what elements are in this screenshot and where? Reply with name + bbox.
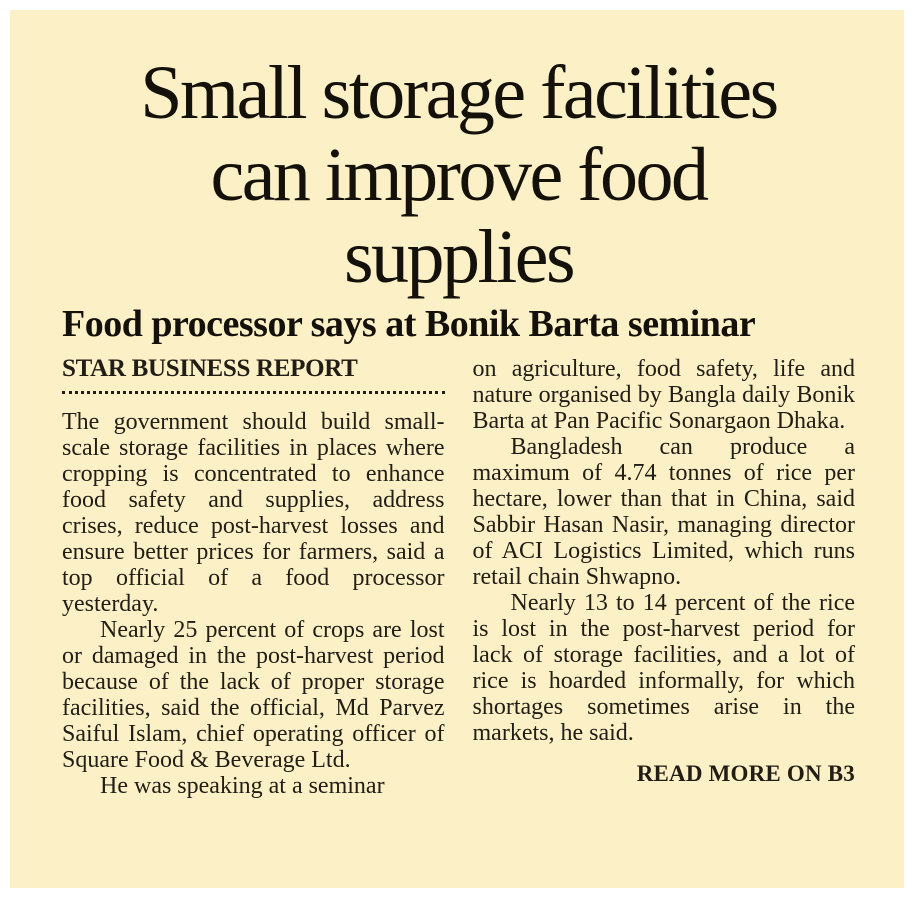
headline-line-2: can improve food: [62, 134, 855, 216]
article-subheadline: Food processor says at Bonik Barta semin…: [62, 302, 855, 346]
byline-dotted-rule: [62, 391, 445, 394]
paragraph: Nearly 13 to 14 percent of the rice is l…: [473, 590, 856, 746]
paragraph: He was speaking at a seminar: [62, 773, 445, 799]
right-column: on agriculture, food safety, life and na…: [473, 356, 856, 799]
article-columns: STAR BUSINESS REPORT The government shou…: [62, 356, 855, 799]
headline-line-1: Small storage facilities: [62, 52, 855, 134]
paragraph: The government should build small-scale …: [62, 409, 445, 617]
newspaper-clipping: Small storage facilities can improve foo…: [10, 10, 904, 888]
byline: STAR BUSINESS REPORT: [62, 356, 445, 382]
headline-line-3: supplies: [62, 216, 855, 298]
read-more-note: READ MORE ON B3: [473, 761, 856, 787]
paragraph: on agriculture, food safety, life and na…: [473, 356, 856, 434]
article-headline: Small storage facilities can improve foo…: [62, 52, 855, 298]
left-column: STAR BUSINESS REPORT The government shou…: [62, 356, 445, 799]
paragraph: Nearly 25 percent of crops are lost or d…: [62, 617, 445, 773]
paragraph: Bangladesh can produce a maximum of 4.74…: [473, 434, 856, 590]
